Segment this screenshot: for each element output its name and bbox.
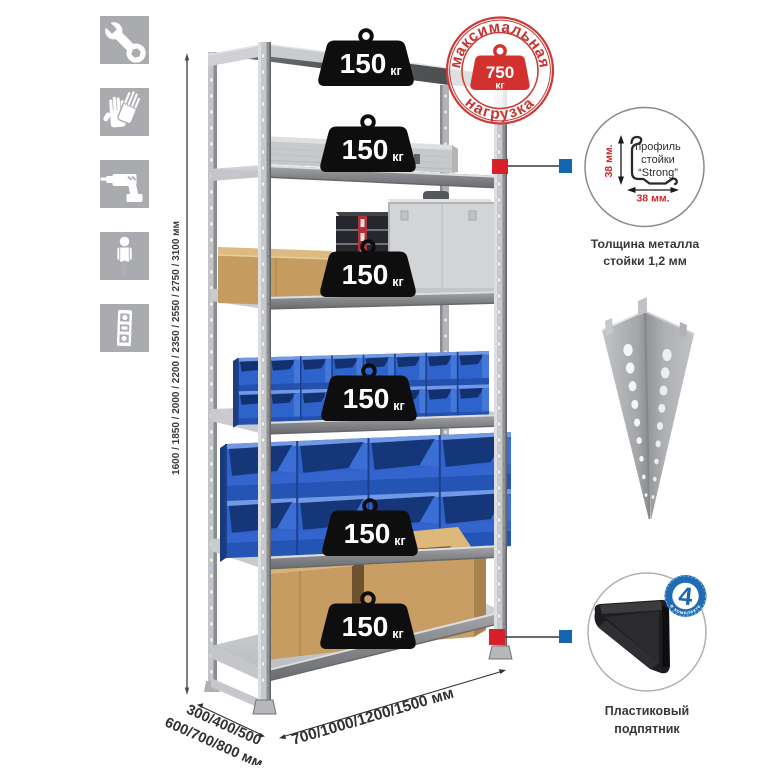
- svg-text:“Strong”: “Strong”: [638, 167, 678, 179]
- svg-text:стойки 1,2 мм: стойки 1,2 мм: [603, 254, 687, 268]
- svg-text:подпятник: подпятник: [614, 722, 680, 736]
- svg-text:38 мм.: 38 мм.: [636, 193, 669, 205]
- svg-text:Пластиковый: Пластиковый: [605, 704, 689, 718]
- svg-text:стойки: стойки: [641, 154, 675, 166]
- svg-text:38 мм.: 38 мм.: [603, 144, 615, 177]
- svg-text:750: 750: [486, 63, 514, 82]
- svg-text:профиль: профиль: [635, 141, 681, 153]
- svg-text:кг: кг: [495, 81, 504, 92]
- svg-text:1600 / 1850 / 2000 / 2200 / 23: 1600 / 1850 / 2000 / 2200 / 2350 / 2550 …: [171, 221, 182, 475]
- svg-text:Толщина металла: Толщина металла: [591, 237, 700, 251]
